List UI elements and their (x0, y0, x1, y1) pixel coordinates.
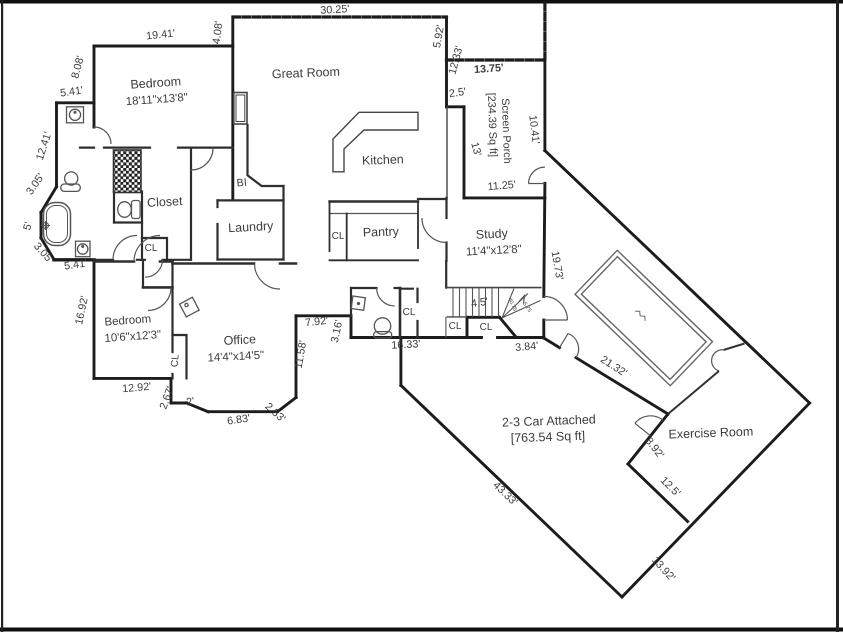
svg-text:3.05': 3.05' (31, 240, 55, 265)
svg-text:11.25': 11.25' (487, 179, 516, 193)
svg-text:5.75: 5.75 (521, 301, 532, 313)
svg-text:[234.39 Sq ft]: [234.39 Sq ft] (485, 93, 499, 158)
svg-text:16.92': 16.92' (73, 295, 91, 326)
svg-text:16.33': 16.33' (391, 338, 421, 352)
svg-text:2.67': 2.67' (158, 385, 177, 411)
svg-text:5.92': 5.92' (431, 24, 447, 49)
svg-text:13.92': 13.92' (649, 554, 677, 584)
svg-text:5.41': 5.41' (63, 257, 88, 272)
svg-text:14'4"x14'5": 14'4"x14'5" (207, 350, 264, 365)
svg-text:Screen Porch: Screen Porch (499, 98, 513, 164)
svg-text:8.92': 8.92' (643, 435, 667, 461)
svg-text:CL: CL (145, 243, 158, 254)
svg-text:Kitchen: Kitchen (362, 152, 404, 167)
svg-text:CL: CL (480, 322, 493, 333)
svg-text:11'4"x12'8": 11'4"x12'8" (466, 244, 522, 259)
svg-text:10'6"x12'3": 10'6"x12'3" (104, 329, 161, 345)
svg-text:BI: BI (236, 177, 247, 190)
svg-text:3.05': 3.05' (24, 171, 47, 197)
svg-text:12.92': 12.92' (122, 381, 152, 395)
svg-text:CL: CL (332, 231, 345, 242)
svg-text:2-3 Car Attached: 2-3 Car Attached (502, 412, 596, 429)
svg-text:4.08': 4.08' (211, 20, 226, 44)
svg-text:2': 2' (185, 395, 195, 408)
svg-text:Pantry: Pantry (363, 224, 400, 239)
svg-text:5': 5' (21, 221, 35, 232)
svg-text:6.83': 6.83' (226, 412, 251, 427)
svg-text:[763.54 Sq ft]: [763.54 Sq ft] (510, 429, 585, 446)
svg-text:7.92': 7.92' (305, 315, 329, 329)
svg-text:2.83': 2.83' (262, 401, 287, 425)
svg-text:18'11"x13'8": 18'11"x13'8" (125, 92, 188, 108)
svg-text:10.41': 10.41' (526, 114, 541, 144)
svg-text:Bedroom: Bedroom (104, 313, 151, 328)
svg-text:8.08': 8.08' (69, 55, 87, 80)
svg-text:Office: Office (223, 332, 256, 348)
svg-text:CL: CL (169, 354, 181, 368)
svg-text:19.41': 19.41' (146, 28, 176, 43)
svg-text:5.41': 5.41' (59, 84, 84, 99)
svg-text:CL: CL (449, 321, 462, 332)
svg-text:Bedroom: Bedroom (130, 74, 182, 92)
svg-text:3.84': 3.84' (515, 340, 539, 354)
svg-text:3.16': 3.16' (329, 319, 346, 344)
svg-text:13.75': 13.75' (474, 62, 505, 76)
svg-text:CL: CL (403, 307, 416, 318)
svg-text:13': 13' (468, 141, 483, 158)
svg-text:4.5': 4.5' (470, 296, 489, 310)
svg-text:Exercise Room: Exercise Room (668, 425, 753, 442)
svg-text:12.41': 12.41' (34, 130, 54, 161)
svg-text:2.5': 2.5' (448, 86, 467, 100)
svg-text:19.73': 19.73' (549, 250, 566, 281)
svg-text:30.25': 30.25' (320, 3, 350, 17)
svg-text:Closet: Closet (147, 194, 184, 210)
svg-text:Great Room: Great Room (272, 65, 341, 81)
svg-text:Study: Study (475, 226, 508, 242)
svg-text:Laundry: Laundry (228, 219, 275, 235)
